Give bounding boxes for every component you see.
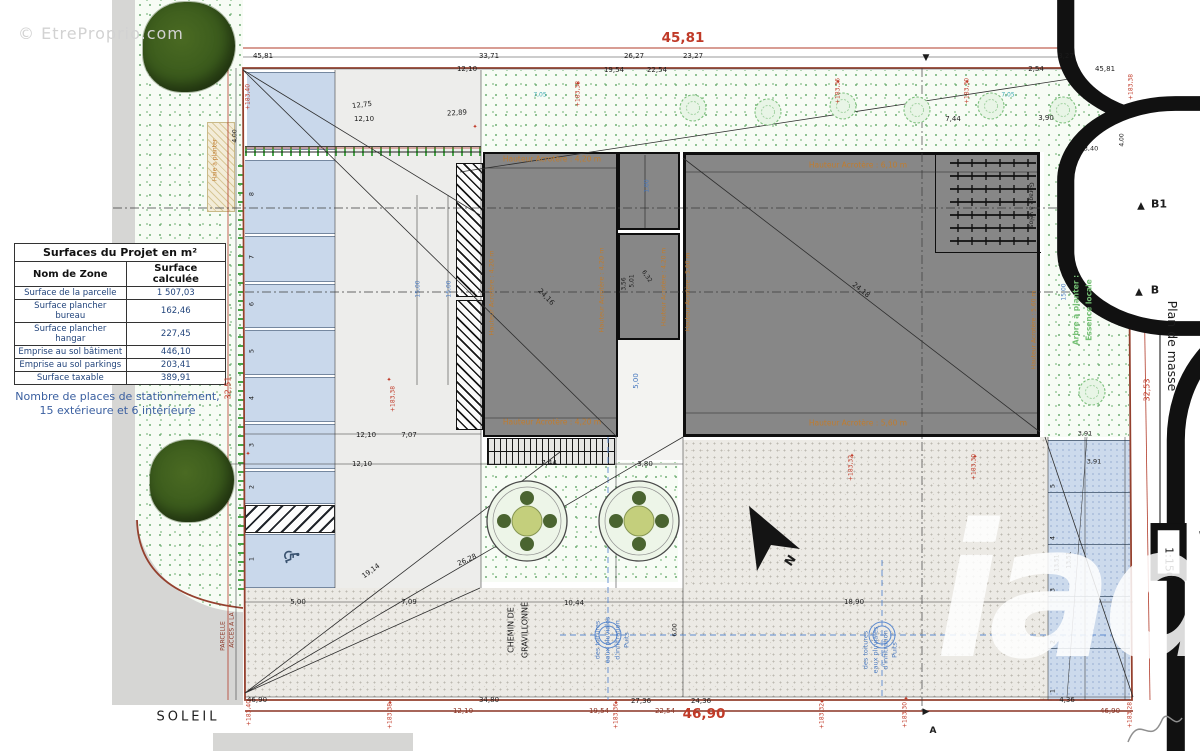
table-cell: 227,45: [126, 323, 225, 346]
table-cell: Emprise au sol bâtiment: [15, 346, 127, 359]
photo-credit-watermark: © EtreProprio.com: [18, 24, 184, 43]
parking-note-line2: 15 extérieure et 6 intérieure: [39, 404, 195, 417]
table-col-surface: Surface calculée: [126, 262, 225, 287]
table-row: Surface plancher bureau162,46: [15, 300, 226, 323]
table-cell: 162,46: [126, 300, 225, 323]
axis-lines: [113, 68, 1133, 713]
car-topview: [1066, 86, 1200, 347]
table-cell: Emprise au sol parkings: [15, 359, 127, 372]
table-body: Surface de la parcelle1 507,03Surface pl…: [15, 287, 226, 385]
table-row: Emprise au sol bâtiment446,10: [15, 346, 226, 359]
car-topview: [1154, 324, 1200, 751]
table-cell: Surface taxable: [15, 372, 127, 385]
utility-lines: [560, 437, 1130, 700]
north-arrow-icon: [749, 506, 800, 571]
table-cell: Surface de la parcelle: [15, 287, 127, 300]
table-title: Surfaces du Projet en m²: [15, 244, 226, 262]
dimension-lines: [202, 57, 1133, 700]
table-col-zone: Nom de Zone: [15, 262, 127, 287]
table-row: Surface de la parcelle1 507,03: [15, 287, 226, 300]
parking-note-line1: Nombre de places de stationnement,: [15, 390, 219, 403]
table-row: Emprise au sol parkings203,41: [15, 359, 226, 372]
table-row: Surface taxable389,91: [15, 372, 226, 385]
street-curb-arc: [137, 520, 243, 608]
table-cell: Surface plancher bureau: [15, 300, 127, 323]
table-cell: 1 507,03: [126, 287, 225, 300]
table-cell: 446,10: [126, 346, 225, 359]
shrub-icons: [680, 81, 1111, 405]
table-cell: Surface plancher hangar: [15, 323, 127, 346]
table-cell: 389,91: [126, 372, 225, 385]
surfaces-table: Surfaces du Projet en m² Nom de Zone Sur…: [14, 243, 226, 385]
table-row: Surface plancher hangar227,45: [15, 323, 226, 346]
parking-note: Nombre de places de stationnement, 15 ex…: [10, 390, 225, 419]
table-cell: 203,41: [126, 359, 225, 372]
tree-planter: [487, 481, 679, 561]
site-plan-canvas: Surfaces du Projet en m² Nom de Zone Sur…: [0, 0, 1200, 751]
